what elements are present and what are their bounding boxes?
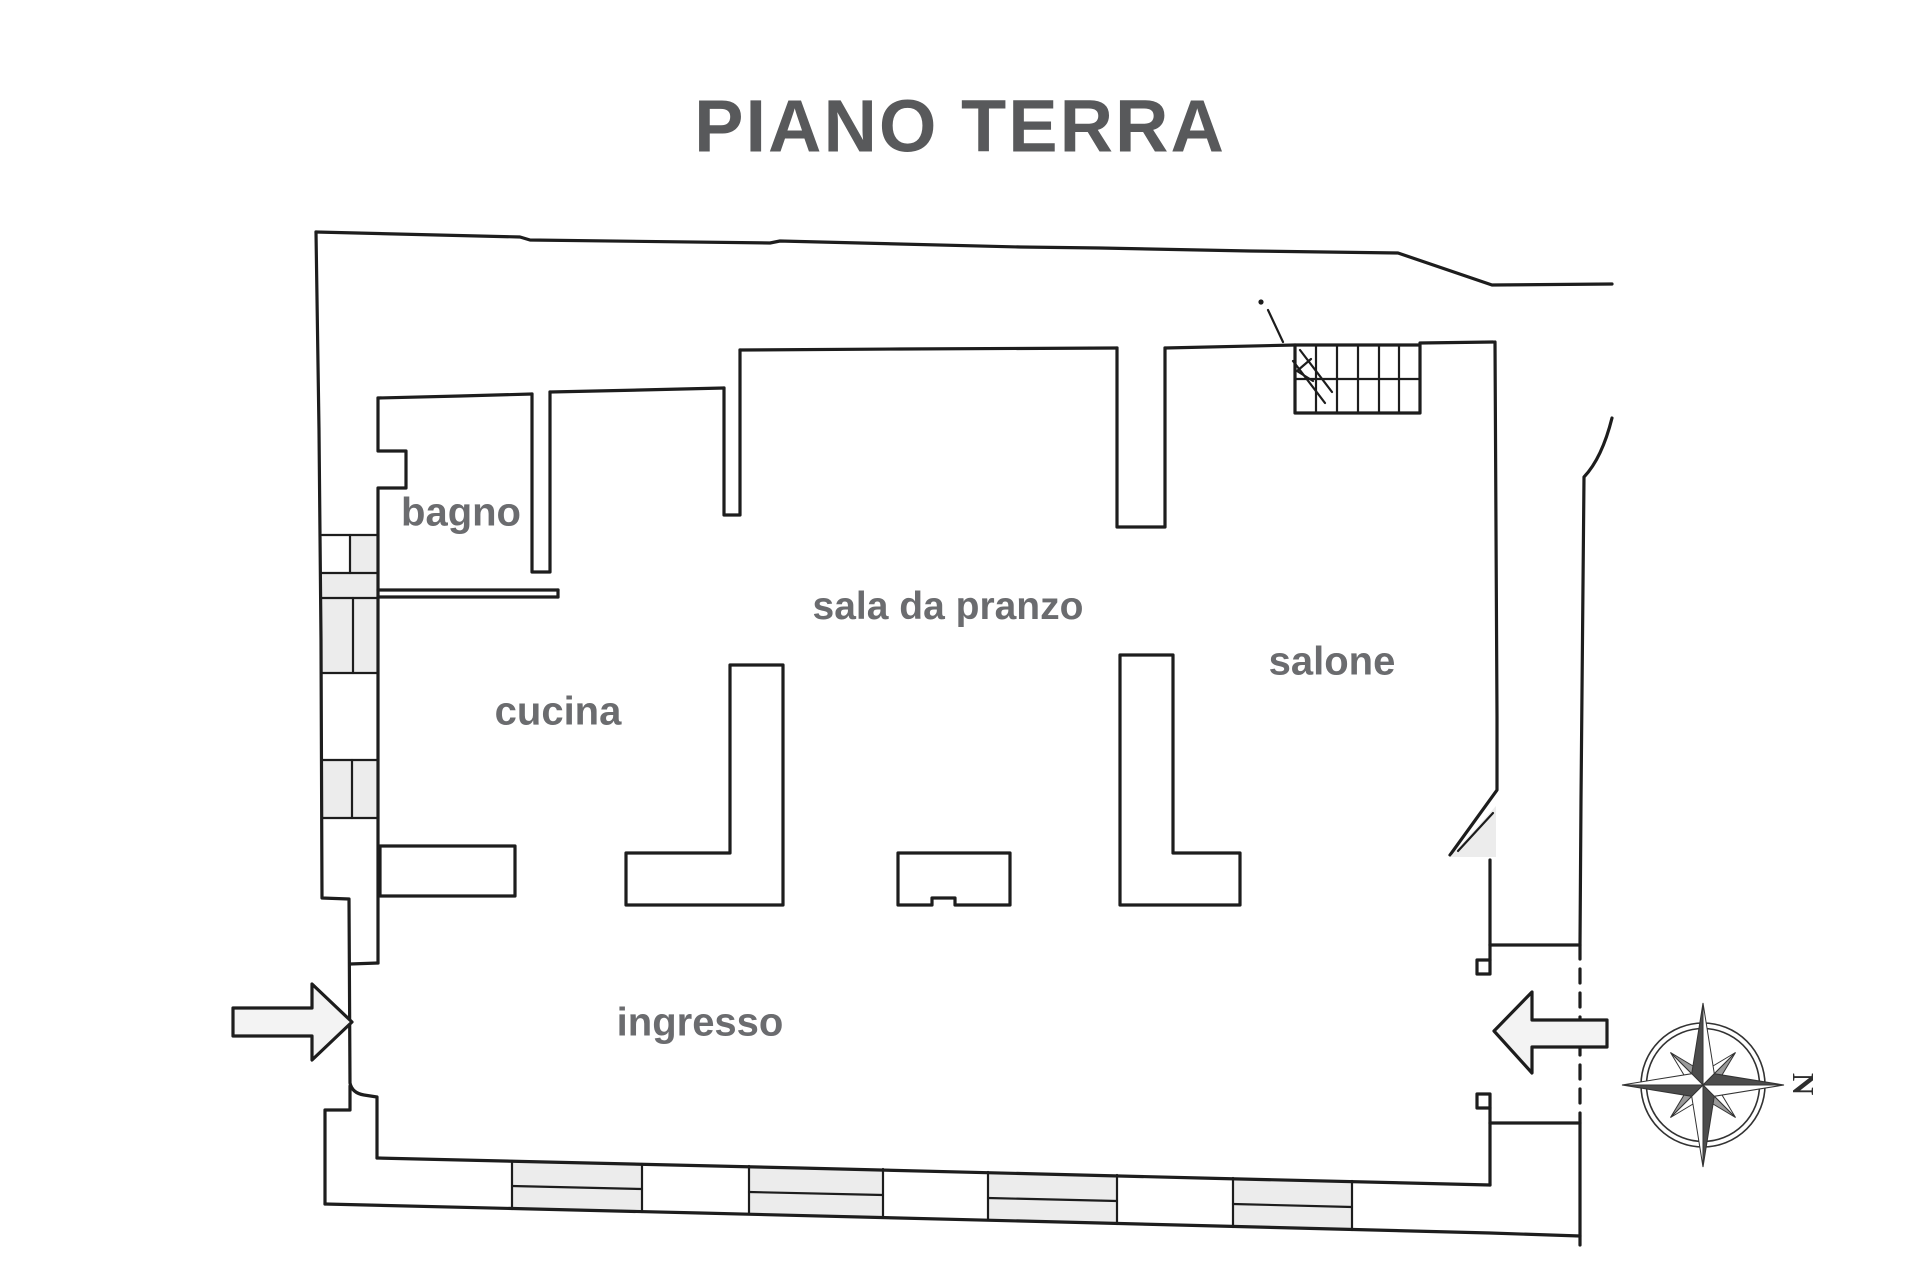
- page-title: PIANO TERRA: [694, 84, 1226, 169]
- stairs-icon: [1258, 299, 1420, 413]
- salone-east-wall: [1450, 342, 1497, 945]
- room-label-ingresso: ingresso: [617, 1001, 784, 1046]
- entrance-arrow-icon-right: [1494, 992, 1607, 1073]
- inner-north-wall: [378, 342, 1493, 398]
- room-label-sala-da-pranzo: sala da pranzo: [813, 585, 1084, 629]
- room-label-salone: salone: [1269, 640, 1396, 685]
- entrance-arrow-icon-left: [233, 984, 352, 1060]
- interior-partitions: [380, 348, 1240, 905]
- compass-rose-icon: N: [1622, 1003, 1821, 1167]
- floor-plan-drawing: N: [0, 0, 1920, 1280]
- entrance-arrows: [233, 984, 1607, 1073]
- room-label-bagno: bagno: [401, 491, 521, 536]
- room-label-cucina: cucina: [495, 690, 622, 735]
- outer-walls: [316, 232, 1612, 1245]
- compass-north-label: N: [1786, 1073, 1821, 1095]
